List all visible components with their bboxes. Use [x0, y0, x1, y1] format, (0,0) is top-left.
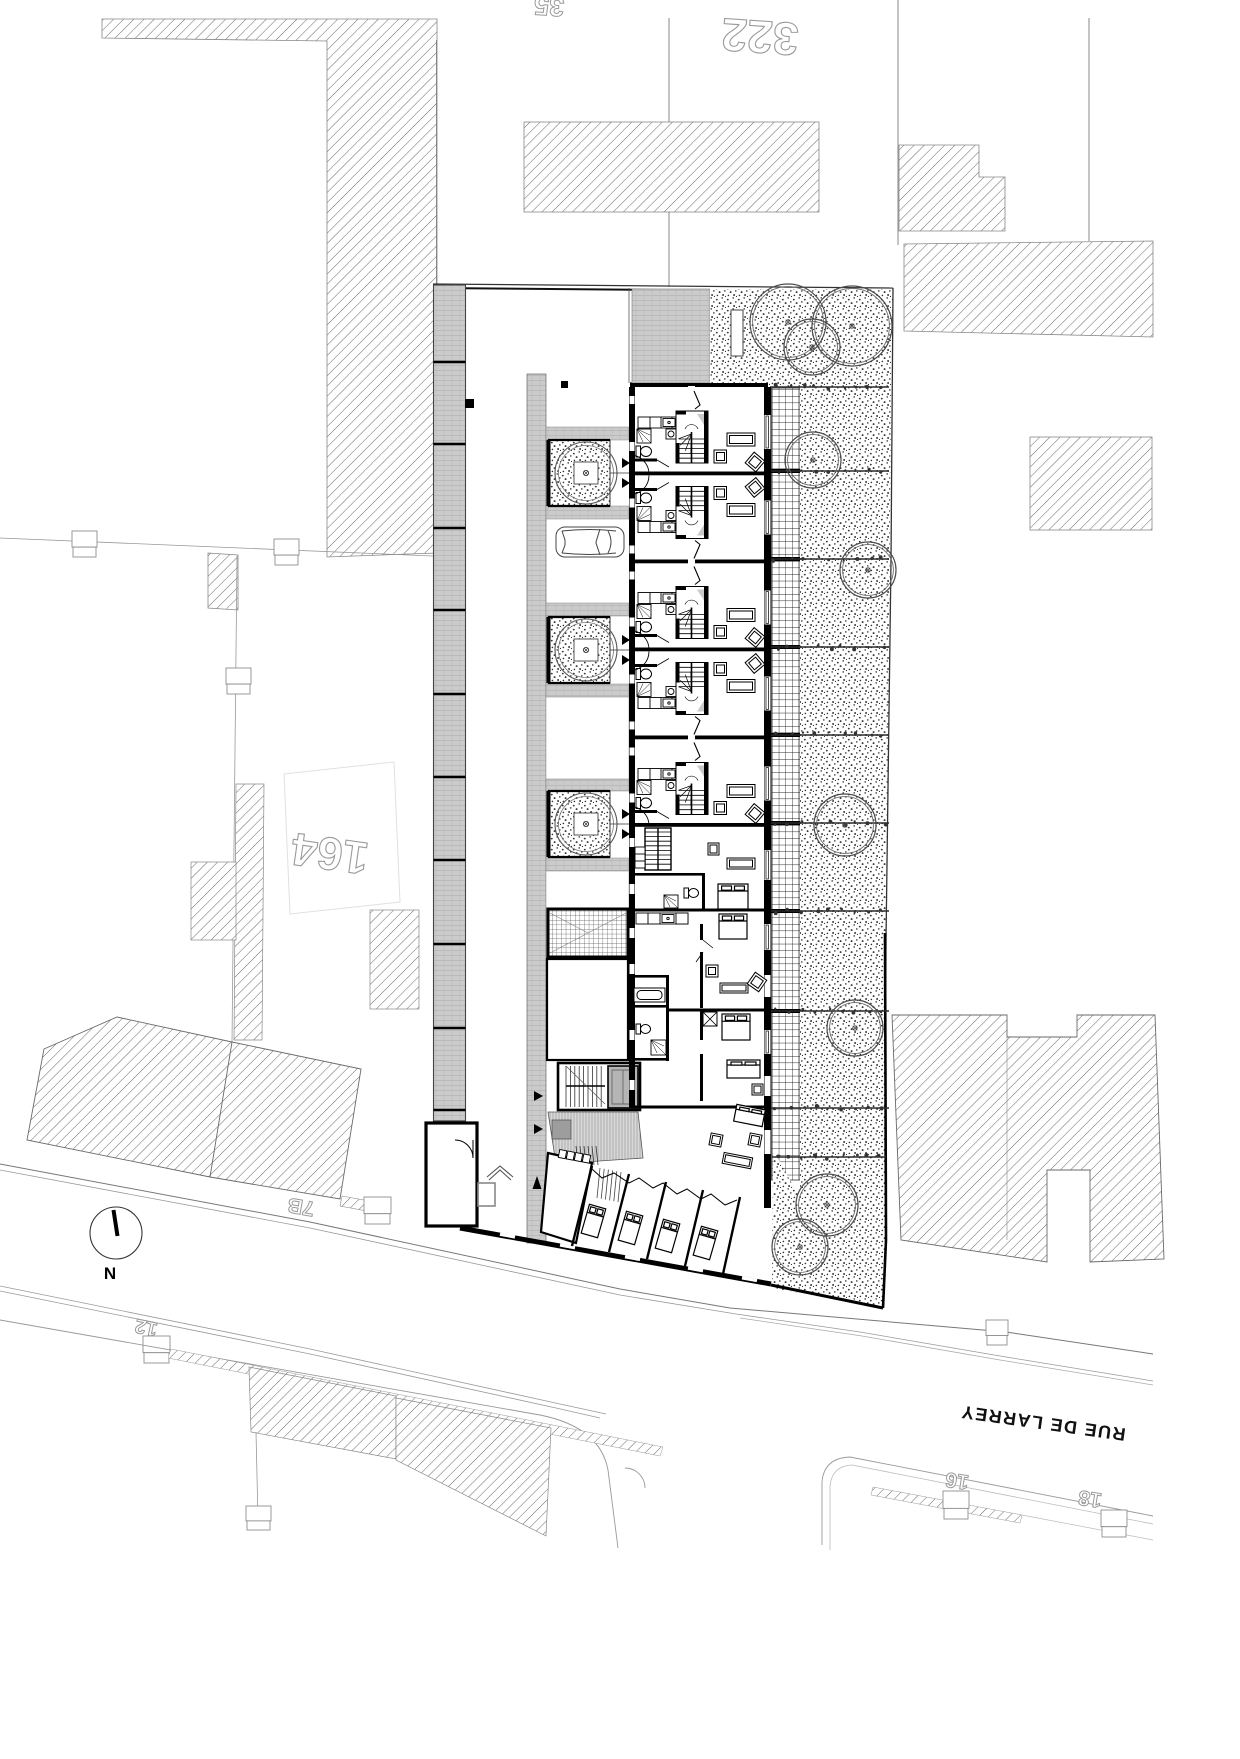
svg-text:18: 18	[1076, 1485, 1103, 1511]
svg-text:164: 164	[288, 823, 372, 885]
svg-text:7B: 7B	[286, 1193, 316, 1220]
svg-text:322: 322	[720, 8, 800, 65]
svg-text:N: N	[104, 1264, 116, 1283]
svg-text:16: 16	[944, 1467, 971, 1493]
svg-text:35: 35	[533, 0, 565, 22]
